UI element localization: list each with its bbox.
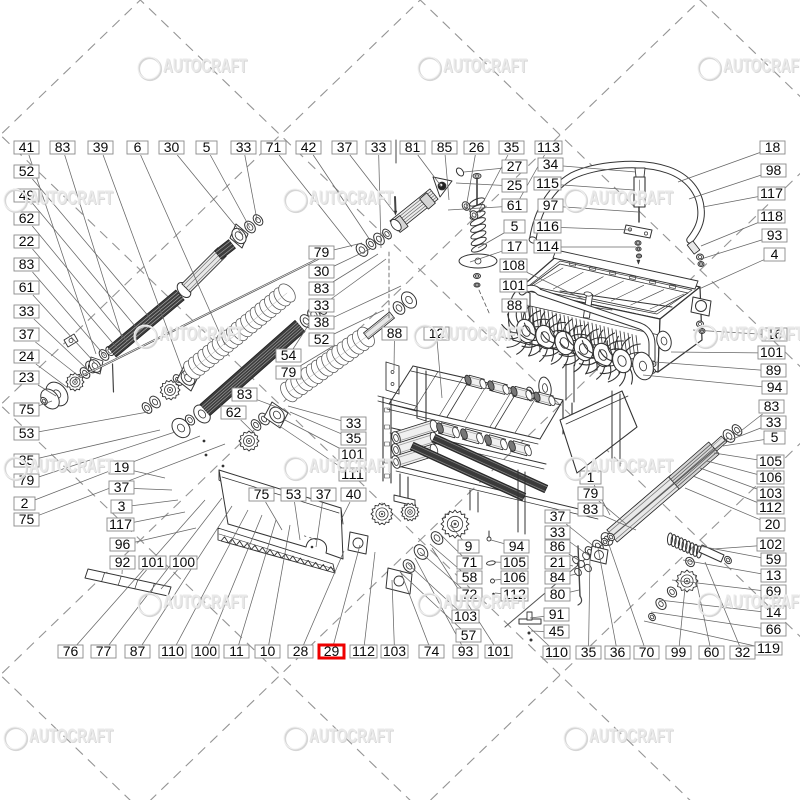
svg-text:37: 37 xyxy=(550,508,566,524)
svg-text:53: 53 xyxy=(286,486,302,502)
svg-text:33: 33 xyxy=(236,139,252,155)
svg-text:AUTOCRAFT: AUTOCRAFT xyxy=(309,456,393,477)
svg-text:80: 80 xyxy=(550,586,566,602)
svg-text:103: 103 xyxy=(383,643,406,659)
svg-text:66: 66 xyxy=(766,621,782,637)
svg-text:71: 71 xyxy=(266,139,282,155)
svg-text:30: 30 xyxy=(314,263,330,279)
svg-text:21: 21 xyxy=(550,554,566,570)
svg-text:37: 37 xyxy=(114,479,130,495)
svg-text:AUTOCRAFT: AUTOCRAFT xyxy=(443,56,527,77)
svg-text:AUTOCRAFT: AUTOCRAFT xyxy=(163,56,247,77)
svg-text:52: 52 xyxy=(314,331,330,347)
svg-text:91: 91 xyxy=(549,606,565,622)
svg-text:41: 41 xyxy=(19,139,35,155)
svg-text:33: 33 xyxy=(19,303,35,319)
svg-text:101: 101 xyxy=(760,344,783,360)
svg-text:23: 23 xyxy=(19,369,35,385)
svg-text:37: 37 xyxy=(19,326,35,342)
svg-text:116: 116 xyxy=(536,218,559,234)
svg-text:112: 112 xyxy=(352,643,375,659)
svg-text:110: 110 xyxy=(545,644,568,660)
svg-text:79: 79 xyxy=(314,244,330,260)
svg-text:AUTOCRAFT: AUTOCRAFT xyxy=(589,456,673,477)
svg-text:112: 112 xyxy=(759,499,782,515)
svg-text:83: 83 xyxy=(764,398,780,414)
svg-text:88: 88 xyxy=(507,297,523,313)
svg-text:117: 117 xyxy=(109,516,132,532)
svg-text:AUTOCRAFT: AUTOCRAFT xyxy=(719,324,800,345)
svg-text:117: 117 xyxy=(760,185,783,201)
svg-text:61: 61 xyxy=(19,279,35,295)
svg-text:4: 4 xyxy=(771,246,779,262)
svg-text:108: 108 xyxy=(502,257,525,273)
svg-text:36: 36 xyxy=(610,644,626,660)
svg-text:70: 70 xyxy=(639,644,655,660)
svg-text:105: 105 xyxy=(759,453,782,469)
svg-text:113: 113 xyxy=(537,139,560,155)
svg-text:34: 34 xyxy=(543,156,559,172)
svg-text:79: 79 xyxy=(281,364,297,380)
svg-text:38: 38 xyxy=(314,314,330,330)
svg-text:83: 83 xyxy=(583,501,599,517)
svg-text:30: 30 xyxy=(164,139,180,155)
svg-text:93: 93 xyxy=(767,227,783,243)
svg-text:99: 99 xyxy=(671,644,687,660)
svg-text:88: 88 xyxy=(387,325,403,341)
svg-text:119: 119 xyxy=(757,640,780,656)
svg-text:13: 13 xyxy=(766,567,782,583)
svg-text:102: 102 xyxy=(759,536,782,552)
svg-text:79: 79 xyxy=(583,485,599,501)
svg-text:AUTOCRAFT: AUTOCRAFT xyxy=(29,726,113,747)
svg-text:18: 18 xyxy=(765,139,781,155)
svg-text:94: 94 xyxy=(767,379,783,395)
svg-text:100: 100 xyxy=(172,554,195,570)
svg-text:58: 58 xyxy=(462,569,478,585)
svg-text:61: 61 xyxy=(507,197,523,213)
svg-text:AUTOCRAFT: AUTOCRAFT xyxy=(163,592,247,613)
svg-text:AUTOCRAFT: AUTOCRAFT xyxy=(723,592,800,613)
svg-text:AUTOCRAFT: AUTOCRAFT xyxy=(723,56,800,77)
svg-text:89: 89 xyxy=(766,362,782,378)
svg-text:101: 101 xyxy=(487,643,510,659)
svg-text:83: 83 xyxy=(55,139,71,155)
svg-text:AUTOCRAFT: AUTOCRAFT xyxy=(589,188,673,209)
svg-text:101: 101 xyxy=(141,554,164,570)
svg-text:114: 114 xyxy=(536,238,559,254)
svg-text:87: 87 xyxy=(130,643,146,659)
svg-text:62: 62 xyxy=(226,404,242,420)
svg-text:75: 75 xyxy=(19,511,35,527)
svg-text:39: 39 xyxy=(93,139,109,155)
svg-text:93: 93 xyxy=(458,643,474,659)
svg-text:85: 85 xyxy=(437,139,453,155)
svg-text:118: 118 xyxy=(760,208,783,224)
svg-text:75: 75 xyxy=(19,401,35,417)
svg-text:60: 60 xyxy=(704,644,720,660)
svg-text:AUTOCRAFT: AUTOCRAFT xyxy=(29,188,113,209)
svg-text:22: 22 xyxy=(19,233,35,249)
svg-text:92: 92 xyxy=(115,554,131,570)
svg-text:97: 97 xyxy=(543,197,559,213)
svg-text:9: 9 xyxy=(465,538,473,554)
svg-text:53: 53 xyxy=(19,425,35,441)
svg-text:AUTOCRAFT: AUTOCRAFT xyxy=(309,726,393,747)
svg-text:106: 106 xyxy=(759,469,782,485)
svg-text:17: 17 xyxy=(507,238,523,254)
svg-text:6: 6 xyxy=(134,139,142,155)
svg-text:33: 33 xyxy=(314,297,330,313)
svg-text:57: 57 xyxy=(461,627,477,643)
svg-text:100: 100 xyxy=(194,643,217,659)
svg-text:52: 52 xyxy=(19,163,35,179)
svg-text:86: 86 xyxy=(550,538,566,554)
svg-text:AUTOCRAFT: AUTOCRAFT xyxy=(443,592,527,613)
svg-text:54: 54 xyxy=(281,347,297,363)
svg-text:37: 37 xyxy=(337,139,353,155)
svg-text:AUTOCRAFT: AUTOCRAFT xyxy=(29,456,113,477)
svg-text:75: 75 xyxy=(254,486,270,502)
svg-text:28: 28 xyxy=(293,643,309,659)
svg-text:62: 62 xyxy=(19,210,35,226)
svg-text:84: 84 xyxy=(550,569,566,585)
svg-text:71: 71 xyxy=(462,554,478,570)
svg-text:AUTOCRAFT: AUTOCRAFT xyxy=(589,726,673,747)
svg-text:33: 33 xyxy=(371,139,387,155)
svg-text:5: 5 xyxy=(511,218,519,234)
svg-text:83: 83 xyxy=(314,280,330,296)
svg-text:10: 10 xyxy=(260,643,276,659)
svg-text:27: 27 xyxy=(507,158,523,174)
svg-text:101: 101 xyxy=(502,277,525,293)
svg-text:20: 20 xyxy=(765,516,781,532)
svg-text:42: 42 xyxy=(301,139,317,155)
svg-text:81: 81 xyxy=(405,139,421,155)
svg-text:33: 33 xyxy=(346,415,362,431)
svg-text:37: 37 xyxy=(316,486,332,502)
svg-text:AUTOCRAFT: AUTOCRAFT xyxy=(159,324,243,345)
svg-text:83: 83 xyxy=(237,386,253,402)
svg-text:96: 96 xyxy=(115,536,131,552)
svg-text:76: 76 xyxy=(63,643,79,659)
svg-text:25: 25 xyxy=(507,177,523,193)
svg-text:59: 59 xyxy=(766,551,782,567)
svg-text:19: 19 xyxy=(114,459,130,475)
svg-text:35: 35 xyxy=(504,139,520,155)
svg-text:26: 26 xyxy=(469,139,485,155)
svg-text:11: 11 xyxy=(229,643,244,659)
svg-text:3: 3 xyxy=(118,498,126,514)
svg-text:5: 5 xyxy=(203,139,211,155)
svg-text:32: 32 xyxy=(735,644,751,660)
svg-text:35: 35 xyxy=(346,430,362,446)
svg-text:98: 98 xyxy=(766,162,782,178)
svg-text:AUTOCRAFT: AUTOCRAFT xyxy=(309,188,393,209)
svg-text:106: 106 xyxy=(503,569,526,585)
svg-text:115: 115 xyxy=(536,175,559,191)
svg-text:105: 105 xyxy=(503,554,526,570)
svg-text:77: 77 xyxy=(96,643,112,659)
svg-text:83: 83 xyxy=(19,256,35,272)
svg-text:33: 33 xyxy=(766,414,782,430)
svg-text:35: 35 xyxy=(581,644,597,660)
svg-text:94: 94 xyxy=(509,538,525,554)
svg-text:5: 5 xyxy=(771,429,779,445)
svg-text:24: 24 xyxy=(19,348,35,364)
svg-text:110: 110 xyxy=(161,643,184,659)
svg-text:2: 2 xyxy=(21,495,29,511)
svg-text:29: 29 xyxy=(324,643,340,659)
svg-text:45: 45 xyxy=(549,623,565,639)
svg-text:40: 40 xyxy=(346,486,362,502)
svg-text:74: 74 xyxy=(424,643,440,659)
svg-text:AUTOCRAFT: AUTOCRAFT xyxy=(439,324,523,345)
